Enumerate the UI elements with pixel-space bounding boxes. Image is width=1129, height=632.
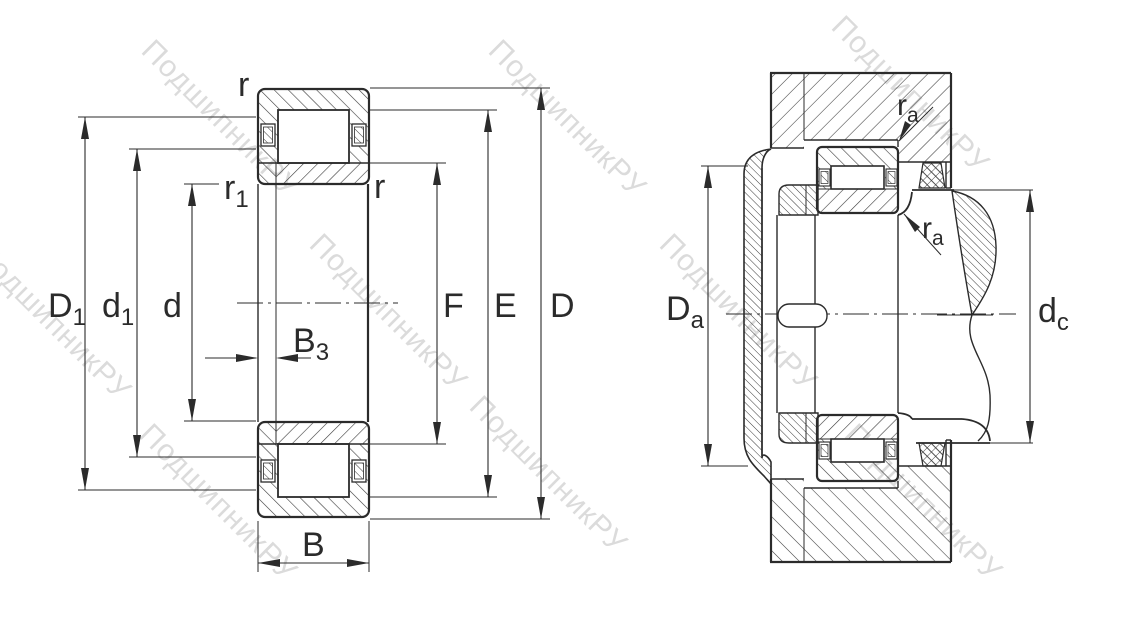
dim-label-B3: B3 bbox=[293, 322, 329, 366]
radius-label-r-top: r bbox=[238, 66, 249, 104]
dim-label-dc: dc bbox=[1038, 292, 1069, 336]
shaft-break-curve bbox=[970, 315, 990, 441]
mounted-bearing-top-section bbox=[817, 147, 898, 213]
radius-label-ra-bottom: ra bbox=[922, 212, 944, 250]
dim-label-E: E bbox=[494, 287, 517, 325]
dim-label-F: F bbox=[443, 287, 464, 325]
radius-label-r1: r1 bbox=[224, 169, 249, 213]
bearing-drawing-page: ПодшипникРУ ПодшипникРУ ПодшипникРУ Подш… bbox=[0, 0, 1129, 632]
dimension-dc: dc bbox=[1026, 190, 1069, 443]
dim-label-d1: d1 bbox=[102, 287, 134, 331]
radius-label-r-right: r bbox=[374, 168, 385, 206]
roller-bottom bbox=[278, 444, 349, 497]
dim-label-B: B bbox=[302, 526, 325, 564]
shaft-break-section bbox=[952, 191, 996, 315]
dim-label-D1: D1 bbox=[48, 287, 86, 331]
watermark-text: ПодшипникРУ bbox=[463, 390, 633, 560]
dim-label-D: D bbox=[550, 287, 575, 325]
roller-top bbox=[278, 110, 349, 163]
mounted-bearing-bottom-section bbox=[817, 415, 898, 481]
seal-top bbox=[919, 163, 945, 188]
seal-bottom bbox=[919, 443, 945, 466]
technical-drawing-canvas: ПодшипникРУ ПодшипникРУ ПодшипникРУ Подш… bbox=[0, 0, 1129, 632]
left-view-bearing-cross-section: D1 d1 d r r1 r B3 B bbox=[48, 66, 575, 572]
locating-pin bbox=[778, 304, 827, 327]
watermark-text: ПодшипникРУ bbox=[482, 34, 652, 204]
dim-label-d: d bbox=[163, 287, 182, 325]
housing-cap-wall bbox=[744, 149, 771, 484]
dimension-B3: B3 bbox=[205, 322, 329, 366]
bearing-top-section bbox=[258, 89, 369, 184]
bearing-bottom-section bbox=[258, 422, 369, 517]
radius-callout-ra-bottom: ra bbox=[904, 212, 944, 255]
